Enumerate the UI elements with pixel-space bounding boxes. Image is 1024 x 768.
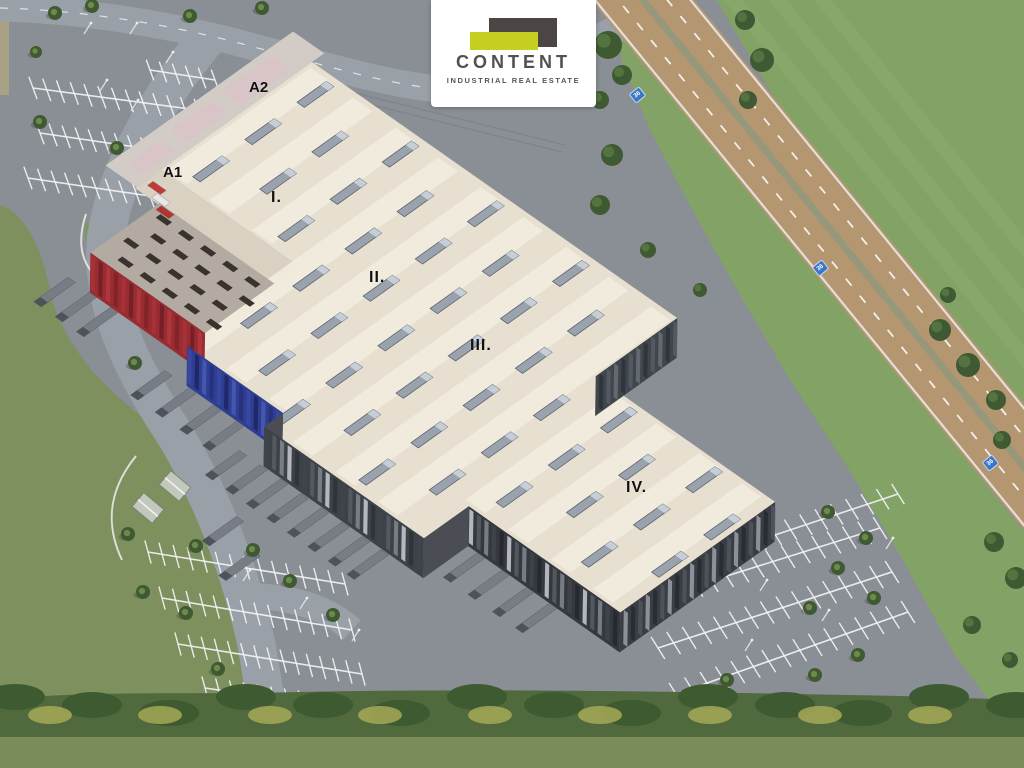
light-pole-lamp <box>766 579 769 582</box>
palm-tree-crown <box>88 2 94 8</box>
palm-tree-crown <box>131 359 137 365</box>
tree-highlight <box>592 197 602 207</box>
palm-tree-crown <box>113 144 119 150</box>
palm-tree-crown <box>834 564 840 570</box>
dry-grass-patch <box>578 706 622 724</box>
tree-highlight <box>597 34 611 48</box>
vegetation-grass <box>0 737 1024 768</box>
tree-highlight <box>737 12 747 22</box>
bush-cluster <box>293 692 353 718</box>
light-pole-lamp <box>306 597 309 600</box>
palm-tree-crown <box>32 48 37 53</box>
palm-tree-crown <box>192 542 198 548</box>
tree-highlight <box>1004 654 1012 662</box>
tree-highlight <box>642 244 650 252</box>
logo-mark-icon <box>431 0 596 52</box>
palm-tree-crown <box>286 577 292 583</box>
palm-tree-crown <box>854 651 860 657</box>
dry-grass-patch <box>248 706 292 724</box>
tree-highlight <box>988 392 998 402</box>
light-pole-lamp <box>172 51 175 54</box>
dry-grass-patch <box>908 706 952 724</box>
light-pole-lamp <box>751 639 754 642</box>
tree-highlight <box>614 67 624 77</box>
tree-highlight <box>965 618 974 627</box>
palm-tree-crown <box>870 594 876 600</box>
palm-tree-crown <box>124 530 130 536</box>
bush-cluster <box>447 684 507 710</box>
tree-highlight <box>986 534 996 544</box>
palm-tree-crown <box>723 676 729 682</box>
light-pole-lamp <box>106 79 109 82</box>
logo-tagline: INDUSTRIAL REAL ESTATE <box>431 76 596 85</box>
section-2-label: II. <box>369 269 385 287</box>
hall-a1-label: A1 <box>163 164 182 181</box>
tree-highlight <box>603 146 614 157</box>
palm-tree-crown <box>36 118 42 124</box>
palm-tree-crown <box>258 4 264 10</box>
developer-logo: CONTENT INDUSTRIAL REAL ESTATE <box>431 0 596 107</box>
aerial-site-view: A2 A1 I. II. III. IV. 36 36 36 CONTENT I… <box>0 0 1024 768</box>
palm-tree-crown <box>824 508 830 514</box>
light-pole-lamp <box>137 99 140 102</box>
tree-highlight <box>752 50 764 62</box>
logo-mark-accent-shape <box>470 32 538 50</box>
light-pole-lamp <box>892 537 895 540</box>
vegetation-layer <box>0 684 1024 768</box>
palm-tree-crown <box>186 12 192 18</box>
tree-highlight <box>931 321 942 332</box>
logo-title: CONTENT <box>431 52 596 73</box>
dry-grass-patch <box>798 706 842 724</box>
tree-highlight <box>995 433 1004 442</box>
tree-highlight <box>694 284 701 291</box>
palm-tree-crown <box>329 611 335 617</box>
light-pole-lamp <box>136 22 139 25</box>
light-pole-lamp <box>249 569 252 572</box>
section-4-label: IV. <box>626 479 647 497</box>
bush-cluster <box>524 692 584 718</box>
dry-grass-patch <box>358 706 402 724</box>
hall-a2-label: A2 <box>249 79 268 96</box>
dry-grass-patch <box>28 706 72 724</box>
palm-tree-crown <box>862 534 868 540</box>
dry-grass-patch <box>688 706 732 724</box>
palm-tree-crown <box>214 665 220 671</box>
palm-tree-crown <box>51 9 57 15</box>
light-pole-lamp <box>90 22 93 25</box>
tree-highlight <box>1007 569 1018 580</box>
bush-cluster <box>909 684 969 710</box>
dry-grass-patch <box>138 706 182 724</box>
tree-highlight <box>942 289 950 297</box>
palm-tree-crown <box>249 546 255 552</box>
section-3-label: III. <box>470 337 492 355</box>
site-map-canvas <box>0 0 1024 768</box>
palm-tree-crown <box>806 604 812 610</box>
palm-tree-crown <box>139 588 145 594</box>
tree-highlight <box>741 93 750 102</box>
dry-grass-patch <box>468 706 512 724</box>
light-pole-lamp <box>828 609 831 612</box>
palm-tree-crown <box>182 609 188 615</box>
light-pole-lamp <box>358 629 361 632</box>
tree-highlight <box>958 355 970 367</box>
section-1-label: I. <box>271 189 282 207</box>
palm-tree-crown <box>811 671 817 677</box>
